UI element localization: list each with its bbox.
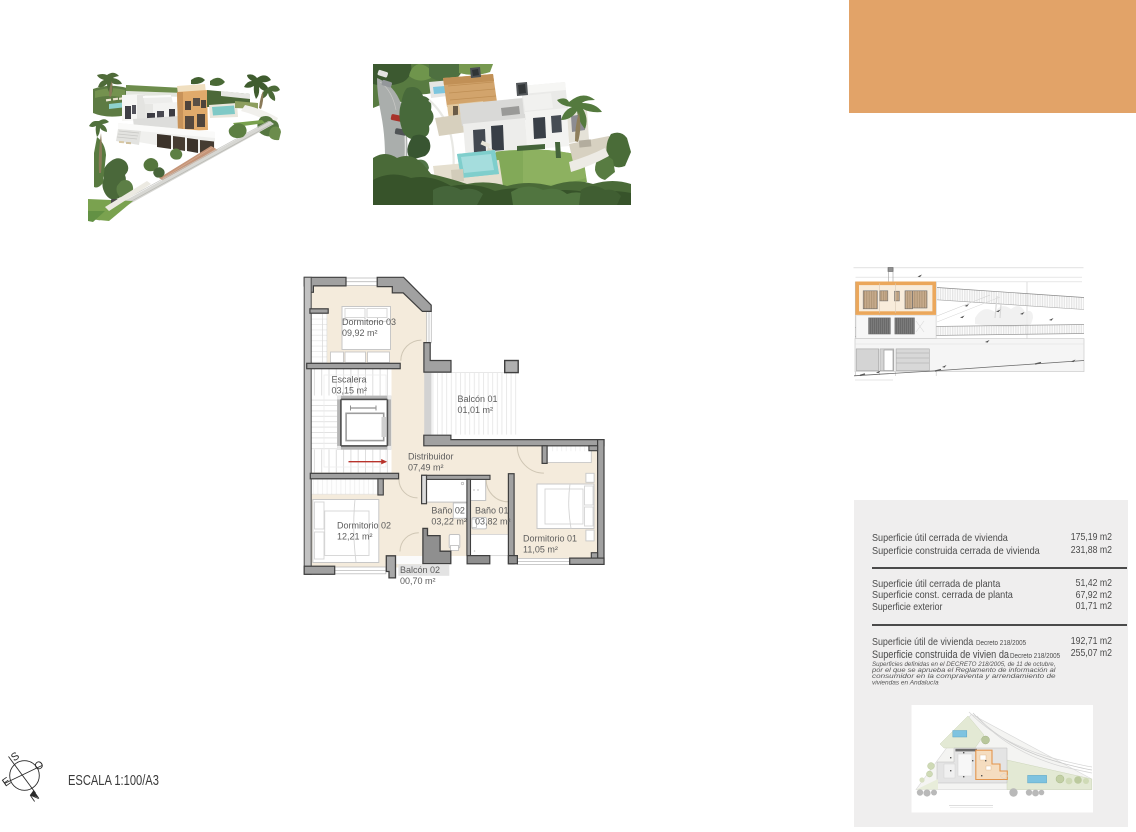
svg-text:07,49 m²: 07,49 m² (408, 463, 444, 473)
svg-text:03,22 m²: 03,22 m² (431, 517, 467, 527)
svg-text:00,70 m²: 00,70 m² (400, 576, 436, 586)
svg-text:Balcón 02: Balcón 02 (400, 565, 440, 575)
svg-text:Dormitorio 03: Dormitorio 03 (342, 317, 396, 327)
svg-text:O: O (32, 758, 46, 773)
svg-text:Baño 02: Baño 02 (431, 506, 465, 516)
svg-text:Dormitorio 01: Dormitorio 01 (523, 534, 577, 544)
svg-text:Escalera: Escalera (332, 375, 367, 385)
svg-text:Balcón 01: Balcón 01 (458, 394, 498, 404)
svg-text:03,82 m²: 03,82 m² (475, 517, 511, 527)
svg-text:03,15 m²: 03,15 m² (332, 386, 368, 396)
svg-text:12,21 m²: 12,21 m² (337, 532, 373, 542)
svg-text:01,01 m²: 01,01 m² (458, 405, 494, 415)
svg-text:viviendas en Andalucía: viviendas en Andalucía (872, 679, 939, 686)
svg-text:Dormitorio 02: Dormitorio 02 (337, 521, 391, 531)
svg-text:S: S (9, 750, 22, 764)
svg-text:N: N (28, 790, 41, 804)
svg-text:11,05 m²: 11,05 m² (523, 545, 558, 555)
svg-text:Baño 01: Baño 01 (475, 506, 509, 516)
svg-text:Distribuidor: Distribuidor (408, 452, 454, 462)
svg-text:09,92 m²: 09,92 m² (342, 328, 378, 338)
